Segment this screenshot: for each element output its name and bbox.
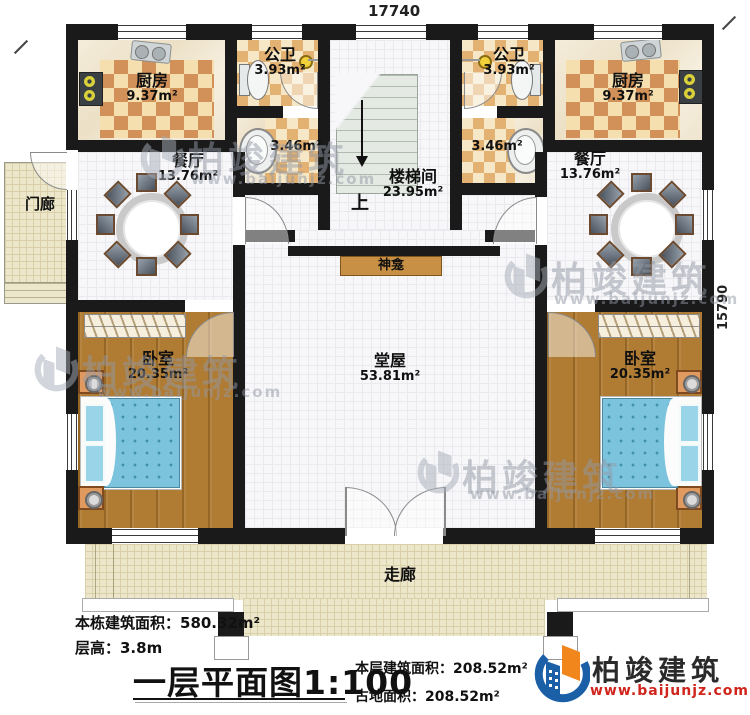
kitchen-right-label: 厨房 9.37m²: [602, 72, 653, 105]
chair-icon: [96, 214, 115, 235]
dimension-tick: [722, 16, 736, 30]
wall-hall-right-lower: [535, 245, 547, 544]
bathroom-left-label: 公卫 3.93m²: [254, 46, 305, 79]
corridor-step-right: [557, 598, 709, 612]
corridor-label: 走廊: [384, 566, 416, 584]
pillow-icon: [84, 404, 105, 443]
ceiling-light-stem: [462, 59, 480, 61]
wall-wash-bottom-left: [237, 183, 330, 195]
total-building-area: 本栋建筑面积：580.32m²: [75, 612, 260, 633]
window: [66, 190, 78, 240]
stairwell-label: 楼梯间 23.95m²: [383, 168, 443, 201]
wall-stair-right: [450, 24, 462, 230]
chair-icon: [631, 257, 652, 276]
shrine-shelf: 神龛: [340, 256, 442, 276]
wall-kitchen-bath-right: [543, 24, 555, 152]
corridor-entry-extension: [243, 598, 545, 636]
chair-icon: [136, 257, 157, 276]
dimension-tick: [14, 40, 28, 54]
column: [547, 612, 573, 636]
corridor-joint-line: [113, 544, 114, 600]
chair-icon: [631, 173, 652, 192]
window: [594, 24, 662, 40]
nightstand-icon: [78, 370, 104, 394]
brand-url: www.baijunjz.com: [590, 683, 749, 699]
wall-dining-bedroom-right: [595, 300, 702, 312]
nightstand-icon: [676, 486, 702, 510]
corridor-step-left: [82, 598, 234, 612]
hall-door-opening-left: [233, 197, 245, 245]
wall-bath-wash-left: [237, 106, 283, 118]
wall-dining-bedroom-left: [78, 300, 185, 312]
brand-logo-icon: [534, 643, 590, 707]
stairs-cut: [335, 73, 381, 131]
bed-sheet-fold: [664, 398, 680, 486]
top-dimension: 17740: [368, 2, 420, 20]
kitchen-left-label: 厨房 9.37m²: [126, 72, 177, 105]
bedroom-left-label: 卧室 20.35m²: [128, 350, 188, 383]
wall-kitchen-bath-left: [225, 24, 237, 152]
nightstand-icon: [676, 370, 702, 394]
window: [702, 414, 714, 470]
window: [702, 190, 714, 240]
porch-label: 门廊: [25, 196, 55, 213]
kitchen-sink-icon: [130, 40, 172, 64]
title-underline-shadow: [135, 702, 347, 703]
stairs-direction-arrow: [361, 100, 363, 158]
window: [595, 528, 680, 544]
corridor-joint-line: [689, 544, 690, 600]
title-underline: [133, 698, 345, 700]
porch-door-opening: [66, 150, 78, 190]
floor-height: 层高：3.8m: [75, 637, 162, 658]
wall-bath-wash-right: [497, 106, 543, 118]
window: [66, 414, 78, 470]
wall-stair-left: [318, 24, 330, 230]
right-dimension: 15790: [716, 285, 731, 330]
bathroom-right-label: 公卫 3.93m²: [483, 46, 534, 79]
brand-logo: 柏竣建筑 www.baijunjz.com: [534, 641, 744, 711]
floor-plan-page: 神龛: [0, 0, 750, 715]
stove-icon: [79, 72, 103, 106]
wall-wash-bottom-right: [450, 183, 543, 195]
stairs-arrowhead: [356, 156, 368, 167]
wall-hall-left-upper: [233, 152, 245, 197]
window: [112, 528, 198, 544]
washroom-right-label: 3.46m²: [471, 140, 522, 155]
stairs-up-label: 上: [351, 194, 369, 214]
wardrobe-icon: [84, 314, 186, 338]
dining-left-label: 餐厅 13.76m²: [158, 152, 218, 185]
nightstand-icon: [78, 486, 104, 510]
chair-icon: [675, 214, 694, 235]
shrine-back-wall: [288, 246, 500, 256]
window: [356, 24, 426, 40]
window: [252, 24, 302, 40]
window: [478, 24, 528, 40]
wall-hall-right-upper: [535, 152, 547, 197]
pillow-icon: [679, 404, 700, 443]
dining-right-label: 餐厅 13.76m²: [560, 150, 620, 183]
wardrobe-icon: [598, 314, 700, 338]
land-area: 占地面积：208.52m²: [355, 686, 500, 706]
kitchen-sink-icon: [620, 38, 662, 62]
bedroom-right-label: 卧室 20.35m²: [610, 350, 670, 383]
window: [118, 24, 186, 40]
corridor-joint-line: [95, 544, 96, 600]
floor-area: 本层建筑面积：208.52m²: [355, 658, 528, 678]
shrine-label: 神龛: [378, 259, 404, 274]
wall-hall-left-lower: [233, 245, 245, 544]
pillow-icon: [679, 444, 700, 483]
stove-icon: [679, 70, 703, 104]
chair-icon: [589, 214, 608, 235]
washroom-left-label: 3.46m²: [270, 140, 321, 155]
chair-icon: [136, 173, 157, 192]
porch-steps: [4, 282, 68, 304]
pillow-icon: [84, 444, 105, 483]
chair-icon: [180, 214, 199, 235]
hall-label: 堂屋 53.81m²: [360, 352, 420, 385]
